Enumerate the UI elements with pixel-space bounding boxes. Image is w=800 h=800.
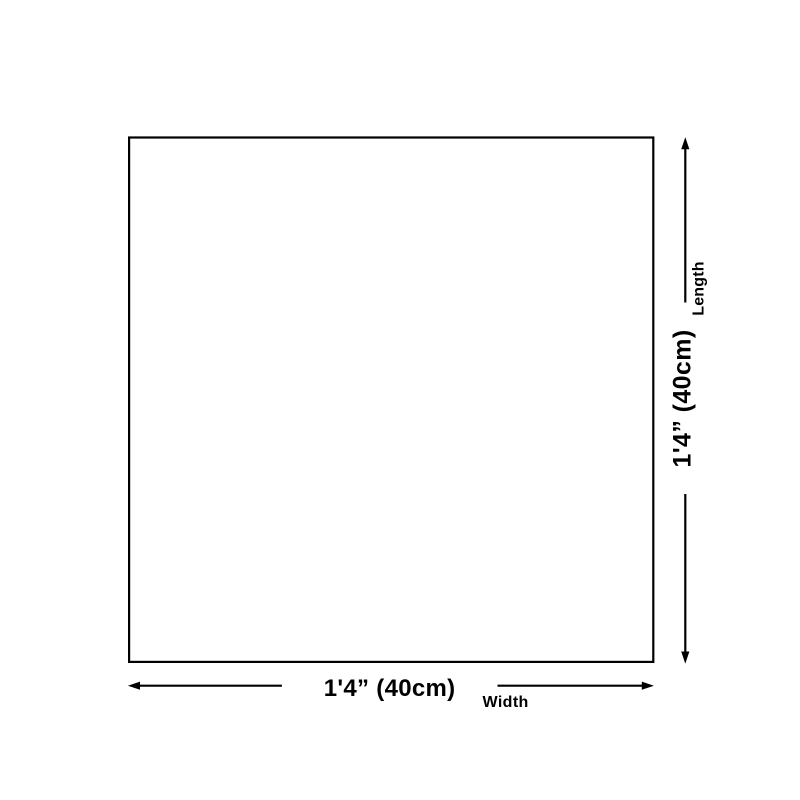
svg-text:1'4” (40cm): 1'4” (40cm): [668, 329, 696, 467]
svg-text:1'4” (40cm): 1'4” (40cm): [324, 675, 456, 702]
svg-text:Width: Width: [482, 694, 528, 711]
svg-text:Length: Length: [690, 261, 707, 316]
